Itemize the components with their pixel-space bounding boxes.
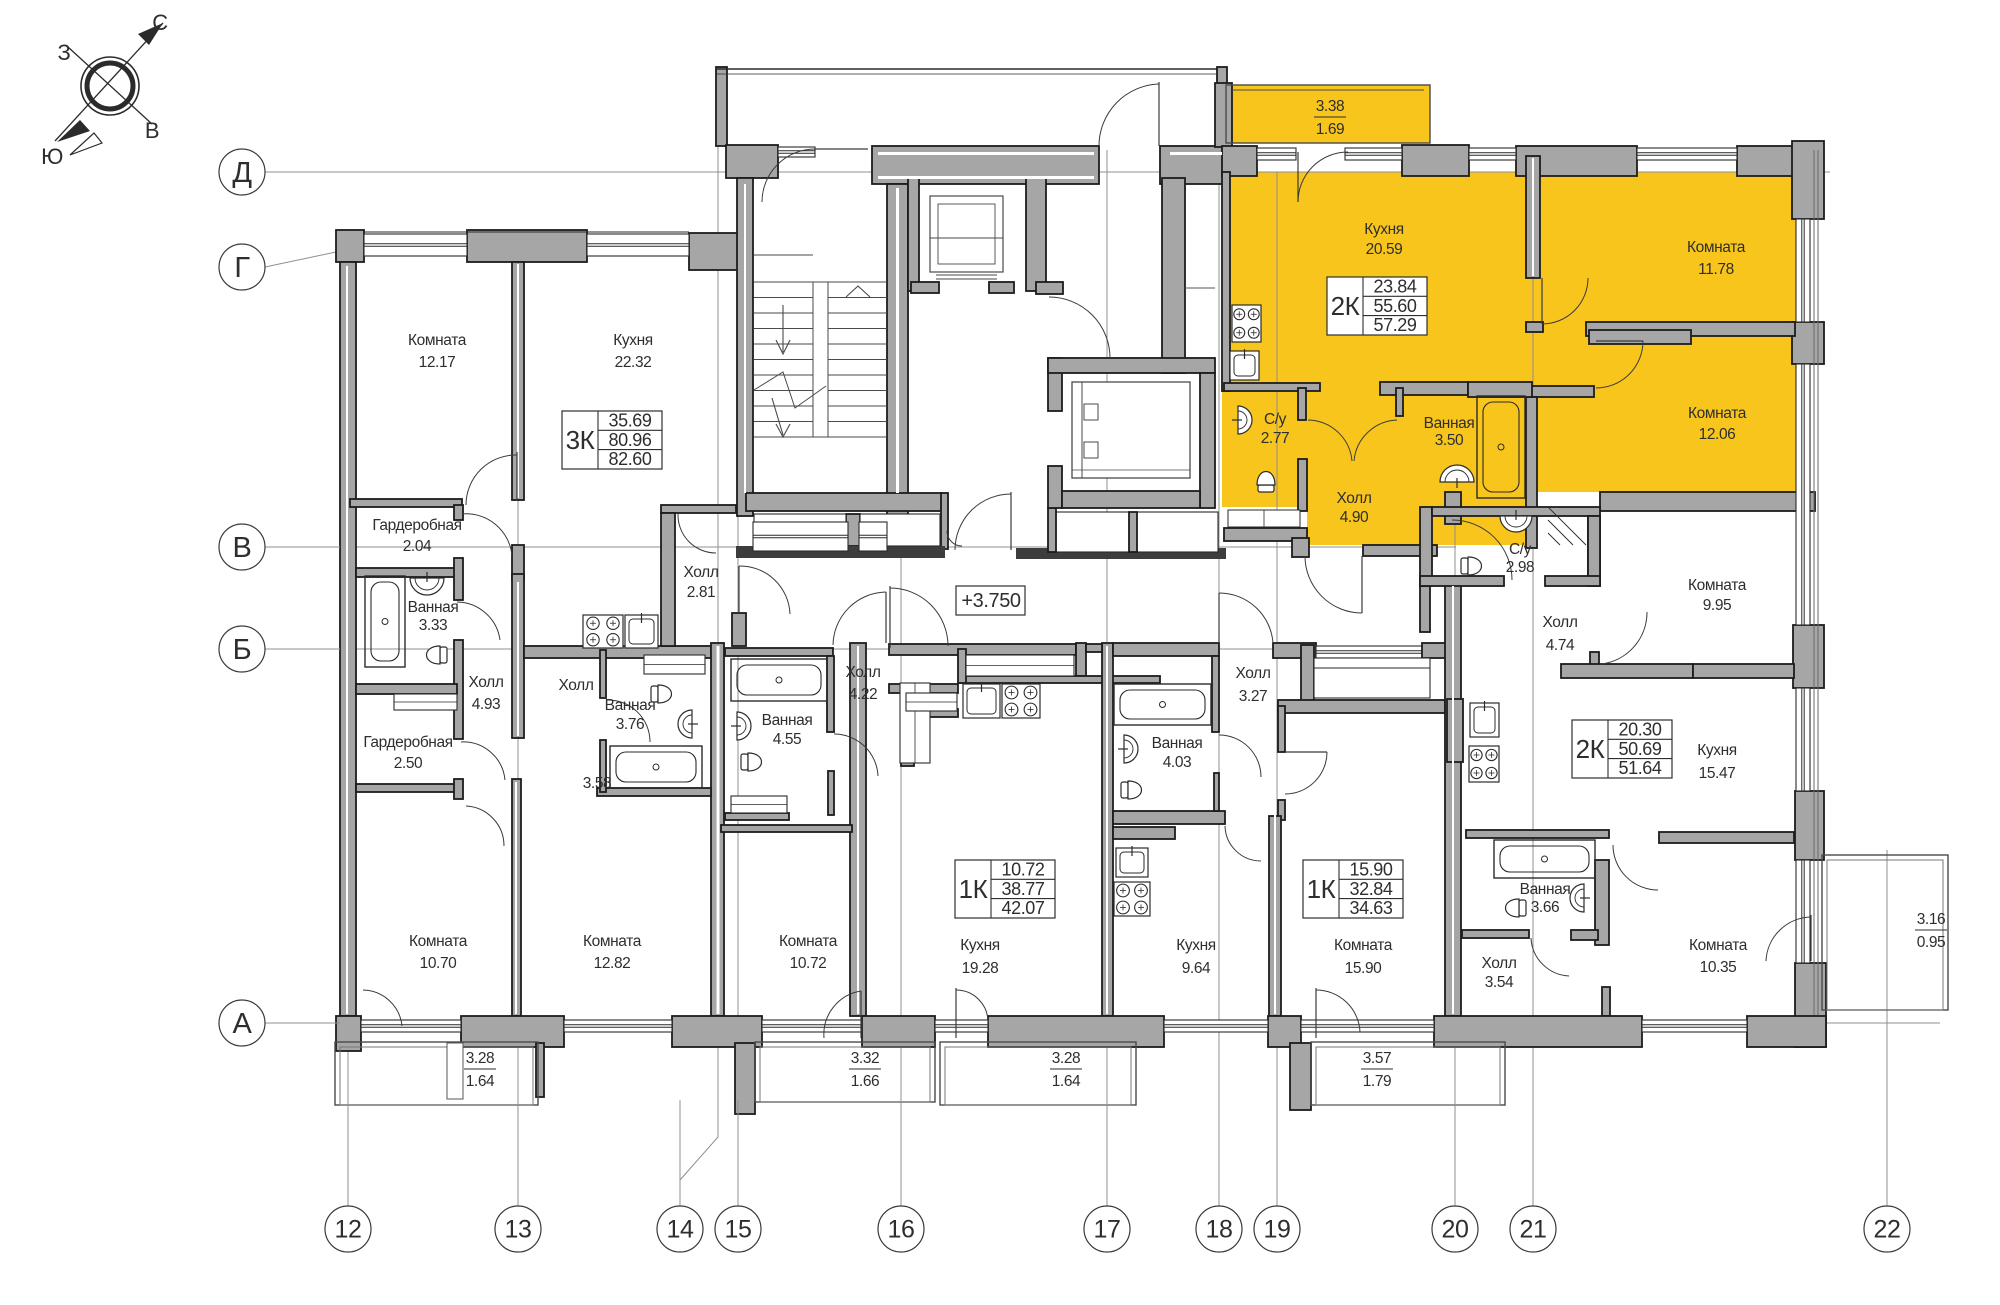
svg-text:10.72: 10.72 [1001,860,1044,880]
svg-text:Холл: Холл [846,664,881,681]
svg-text:2.81: 2.81 [687,584,716,601]
svg-text:42.07: 42.07 [1001,898,1044,918]
svg-text:23.84: 23.84 [1373,277,1416,297]
svg-text:1.64: 1.64 [466,1073,495,1090]
svg-text:Гардеробная: Гардеробная [372,517,461,534]
svg-text:Комната: Комната [779,933,838,950]
svg-text:1.79: 1.79 [1363,1073,1392,1090]
svg-text:80.96: 80.96 [608,430,651,450]
svg-text:20.59: 20.59 [1366,241,1403,258]
svg-text:2К: 2К [1576,734,1605,764]
svg-text:4.22: 4.22 [849,686,878,703]
svg-text:12: 12 [334,1216,361,1244]
svg-text:17: 17 [1093,1216,1120,1244]
svg-text:Кухня: Кухня [1697,742,1736,759]
svg-text:Д: Д [232,157,252,189]
svg-text:Комната: Комната [1687,239,1746,256]
svg-text:2.50: 2.50 [394,755,423,772]
svg-text:9.64: 9.64 [1182,960,1211,977]
svg-text:Кухня: Кухня [1176,937,1215,954]
svg-text:3.28: 3.28 [466,1050,495,1067]
svg-text:21: 21 [1519,1216,1546,1244]
svg-text:Комната: Комната [583,933,642,950]
svg-text:Холл: Холл [1236,665,1271,682]
svg-text:А: А [233,1008,253,1040]
svg-text:С/у: С/у [1264,411,1287,428]
svg-text:32.84: 32.84 [1349,879,1392,899]
svg-text:Комната: Комната [1689,937,1748,954]
svg-text:1К: 1К [959,874,988,904]
svg-text:10.72: 10.72 [790,955,827,972]
svg-text:3.66: 3.66 [1531,899,1560,916]
svg-text:2.77: 2.77 [1261,430,1290,447]
svg-text:Холл: Холл [684,564,719,581]
svg-text:Холл: Холл [1482,955,1517,972]
svg-text:57.29: 57.29 [1373,315,1416,335]
svg-text:Ванная: Ванная [605,697,656,714]
svg-text:10.70: 10.70 [420,955,458,972]
svg-text:Ванная: Ванная [1152,735,1203,752]
svg-text:Ванная: Ванная [1520,881,1571,898]
svg-text:С/у: С/у [1509,541,1532,558]
svg-text:Холл: Холл [469,674,504,691]
svg-text:2.04: 2.04 [403,538,432,555]
svg-text:55.60: 55.60 [1373,296,1416,316]
svg-text:Ванная: Ванная [1424,415,1475,432]
svg-text:Холл: Холл [559,677,594,694]
svg-text:Кухня: Кухня [960,937,999,954]
svg-text:19.28: 19.28 [962,960,999,977]
svg-text:Ванная: Ванная [408,599,459,616]
svg-text:2К: 2К [1331,291,1360,321]
svg-text:4.55: 4.55 [773,731,802,748]
svg-text:35.69: 35.69 [608,411,651,431]
svg-text:Г: Г [234,252,250,284]
svg-text:82.60: 82.60 [608,449,651,469]
svg-text:3К: 3К [566,425,595,455]
svg-text:1.66: 1.66 [851,1073,880,1090]
svg-text:19: 19 [1263,1216,1290,1244]
svg-text:Комната: Комната [408,332,467,349]
svg-text:Ю: Ю [41,144,63,169]
svg-text:15.90: 15.90 [1349,860,1392,880]
svg-text:18: 18 [1205,1216,1232,1244]
svg-text:15.90: 15.90 [1345,960,1383,977]
svg-text:Б: Б [233,634,252,666]
svg-text:Кухня: Кухня [613,332,652,349]
svg-text:3.32: 3.32 [851,1050,880,1067]
svg-text:3.57: 3.57 [1363,1050,1392,1067]
svg-text:22.32: 22.32 [615,354,652,371]
svg-text:20: 20 [1441,1216,1468,1244]
svg-text:3.76: 3.76 [616,716,645,733]
svg-text:3.38: 3.38 [1316,98,1345,115]
svg-text:С: С [152,10,168,35]
svg-text:4.03: 4.03 [1163,754,1192,771]
svg-text:Комната: Комната [1334,937,1393,954]
svg-text:В: В [233,532,252,564]
svg-text:20.30: 20.30 [1618,720,1661,740]
svg-text:12.82: 12.82 [594,955,631,972]
svg-text:4.90: 4.90 [1340,509,1369,526]
svg-text:1.64: 1.64 [1052,1073,1081,1090]
svg-text:16: 16 [887,1216,914,1244]
svg-text:Комната: Комната [409,933,468,950]
svg-text:2.98: 2.98 [1506,559,1535,576]
svg-text:12.06: 12.06 [1699,426,1736,443]
svg-text:Холл: Холл [1543,614,1578,631]
svg-text:34.63: 34.63 [1349,898,1392,918]
svg-text:22: 22 [1873,1216,1900,1244]
svg-text:В: В [145,118,159,143]
svg-text:15: 15 [724,1216,751,1244]
svg-text:Комната: Комната [1688,405,1747,422]
svg-text:14: 14 [666,1216,694,1244]
svg-text:11.78: 11.78 [1698,261,1734,278]
svg-text:3.28: 3.28 [1052,1050,1081,1067]
svg-text:3.33: 3.33 [419,617,448,634]
svg-text:Гардеробная: Гардеробная [363,734,452,751]
svg-text:3.58: 3.58 [583,775,612,792]
svg-text:1.69: 1.69 [1316,121,1345,138]
svg-text:50.69: 50.69 [1618,739,1661,759]
svg-text:3.54: 3.54 [1485,974,1514,991]
svg-text:9.95: 9.95 [1703,597,1732,614]
svg-text:3.50: 3.50 [1435,432,1464,449]
svg-text:Комната: Комната [1688,577,1747,594]
svg-text:51.64: 51.64 [1618,758,1661,778]
svg-text:З: З [58,40,71,65]
svg-text:4.74: 4.74 [1546,637,1575,654]
svg-text:15.47: 15.47 [1699,765,1736,782]
svg-text:Ванная: Ванная [762,712,813,729]
svg-text:1К: 1К [1307,874,1336,904]
svg-text:+3.750: +3.750 [961,590,1021,612]
svg-text:38.77: 38.77 [1001,879,1044,899]
svg-text:0.95: 0.95 [1917,934,1946,951]
svg-text:4.93: 4.93 [472,696,501,713]
svg-text:10.35: 10.35 [1700,959,1737,976]
svg-text:Холл: Холл [1337,490,1372,507]
svg-text:Кухня: Кухня [1364,221,1403,238]
svg-text:3.27: 3.27 [1239,688,1268,705]
svg-text:12.17: 12.17 [419,354,456,371]
svg-text:13: 13 [504,1216,531,1244]
svg-text:3.16: 3.16 [1917,911,1946,928]
